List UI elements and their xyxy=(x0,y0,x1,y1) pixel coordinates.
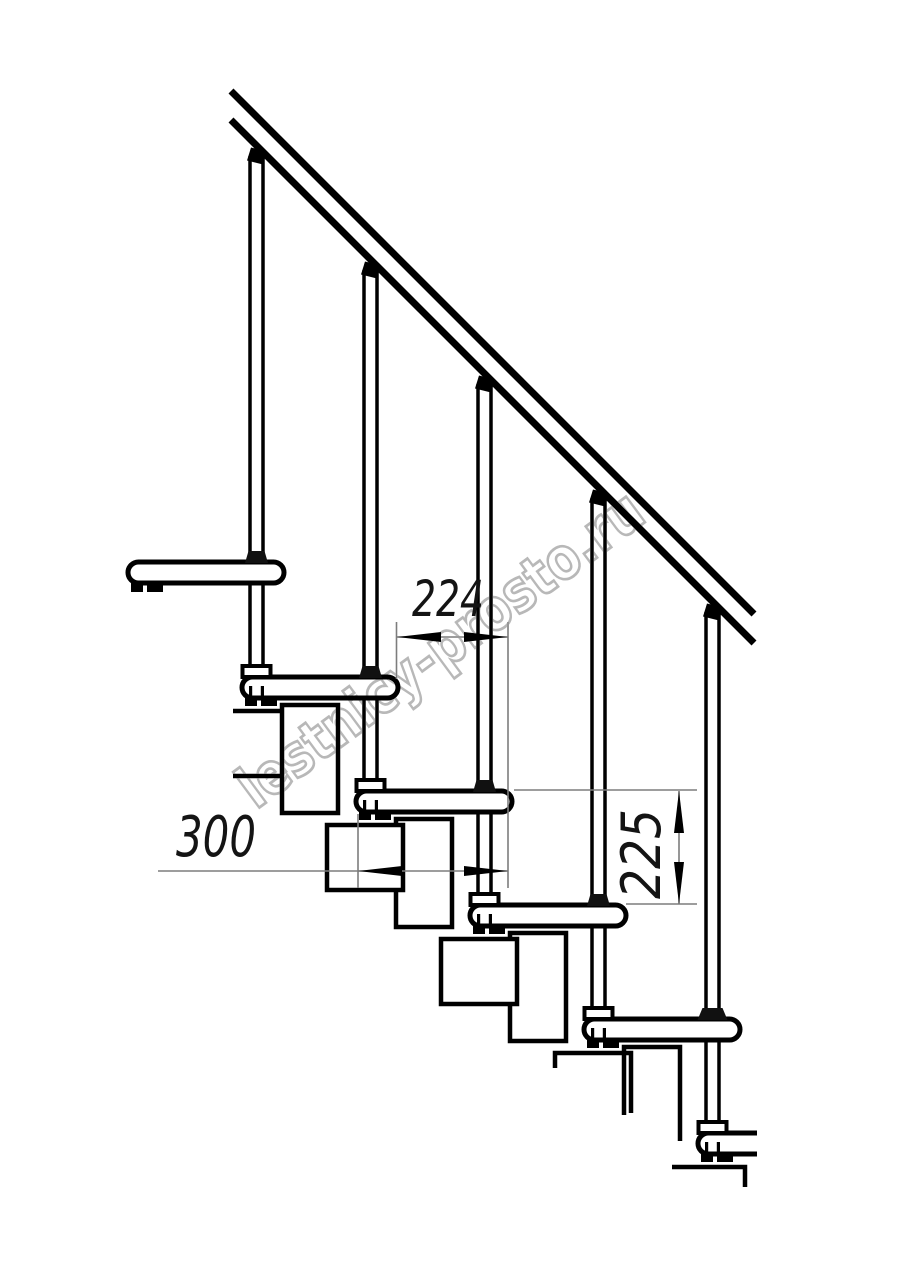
tread-2 xyxy=(356,791,512,812)
tread-3 xyxy=(470,905,626,926)
baluster-1-foot-plate xyxy=(243,666,271,677)
dim-label-depth: 300 xyxy=(176,805,256,870)
dim-label-rise: 225 xyxy=(610,809,673,899)
support-box-3 xyxy=(555,1053,631,1113)
baluster-5-foot-plate xyxy=(699,1122,727,1133)
baluster-3-collar xyxy=(473,780,496,792)
support-box-2 xyxy=(441,939,517,1004)
arrow-down-icon xyxy=(674,862,684,904)
arrow-up-icon xyxy=(674,791,684,833)
tread-4 xyxy=(584,1019,740,1040)
baluster-5-collar xyxy=(698,1008,728,1020)
technical-drawing-page: 224 300 225 lestnicy-prosto.ru xyxy=(0,0,914,1280)
baluster-2-foot-plate xyxy=(357,780,385,791)
staircase-drawing: 224 300 225 lestnicy-prosto.ru xyxy=(0,0,914,1280)
baluster-4-collar xyxy=(587,894,610,906)
baluster-1-collar xyxy=(245,551,268,563)
baluster-1 xyxy=(250,158,263,666)
baluster-3-foot-plate xyxy=(471,894,499,905)
baluster-4-foot-plate xyxy=(585,1008,613,1019)
tread-0 xyxy=(128,562,284,583)
baluster-5 xyxy=(706,614,719,1122)
support-box-4 xyxy=(672,1167,745,1187)
support-box-1 xyxy=(327,825,403,890)
